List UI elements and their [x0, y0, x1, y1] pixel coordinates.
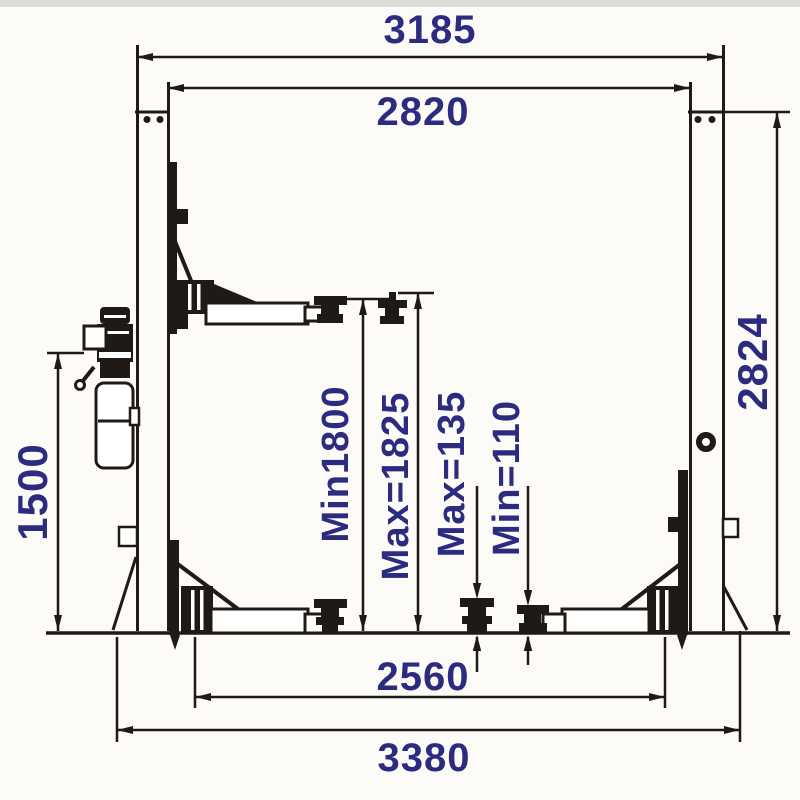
dim-overall-top-width	[137, 53, 723, 61]
dim-label-pad-height-max: Max=135	[430, 374, 474, 574]
foot-brace	[724, 587, 747, 630]
dim-label-lift-height-min: Min1800	[314, 364, 358, 564]
dim-label-column-height: 2824	[731, 262, 775, 462]
swing-arm-lower-right	[517, 605, 649, 633]
cable-roller-icon	[157, 116, 164, 123]
screw-pad-max-135	[460, 598, 494, 633]
lift-dimension-diagram: 3185 2820 2824 1500 Min1800 Max=1825 Max…	[0, 0, 800, 800]
dim-label-lift-height-max: Max=1825	[374, 386, 418, 586]
dim-label-base-inner-width: 2560	[323, 657, 523, 697]
lock-release-bracket	[119, 527, 137, 546]
cable-roller-icon	[709, 116, 716, 123]
dim-label-overall-base-width: 3380	[324, 738, 524, 778]
cable-roller-icon	[144, 116, 151, 123]
release-handle	[82, 367, 94, 382]
motor-bracket	[84, 326, 106, 349]
cable-roller-icon	[695, 116, 702, 123]
dim-label-pad-height-min: Min=110	[485, 378, 529, 578]
handle-knob	[76, 381, 85, 390]
dim-label-inner-clear-width: 2820	[323, 92, 523, 132]
mounting-hole	[699, 435, 713, 449]
lock-release-bracket	[723, 519, 738, 537]
foot-brace	[113, 557, 136, 630]
dim-label-overall-top-width: 3185	[330, 10, 530, 50]
oil-tank	[96, 383, 139, 468]
dim-pad-height-max	[473, 486, 481, 672]
screw-pad-max-lift	[378, 292, 407, 324]
power-unit	[76, 307, 134, 390]
dim-label-power-unit-height: 1500	[11, 392, 55, 592]
